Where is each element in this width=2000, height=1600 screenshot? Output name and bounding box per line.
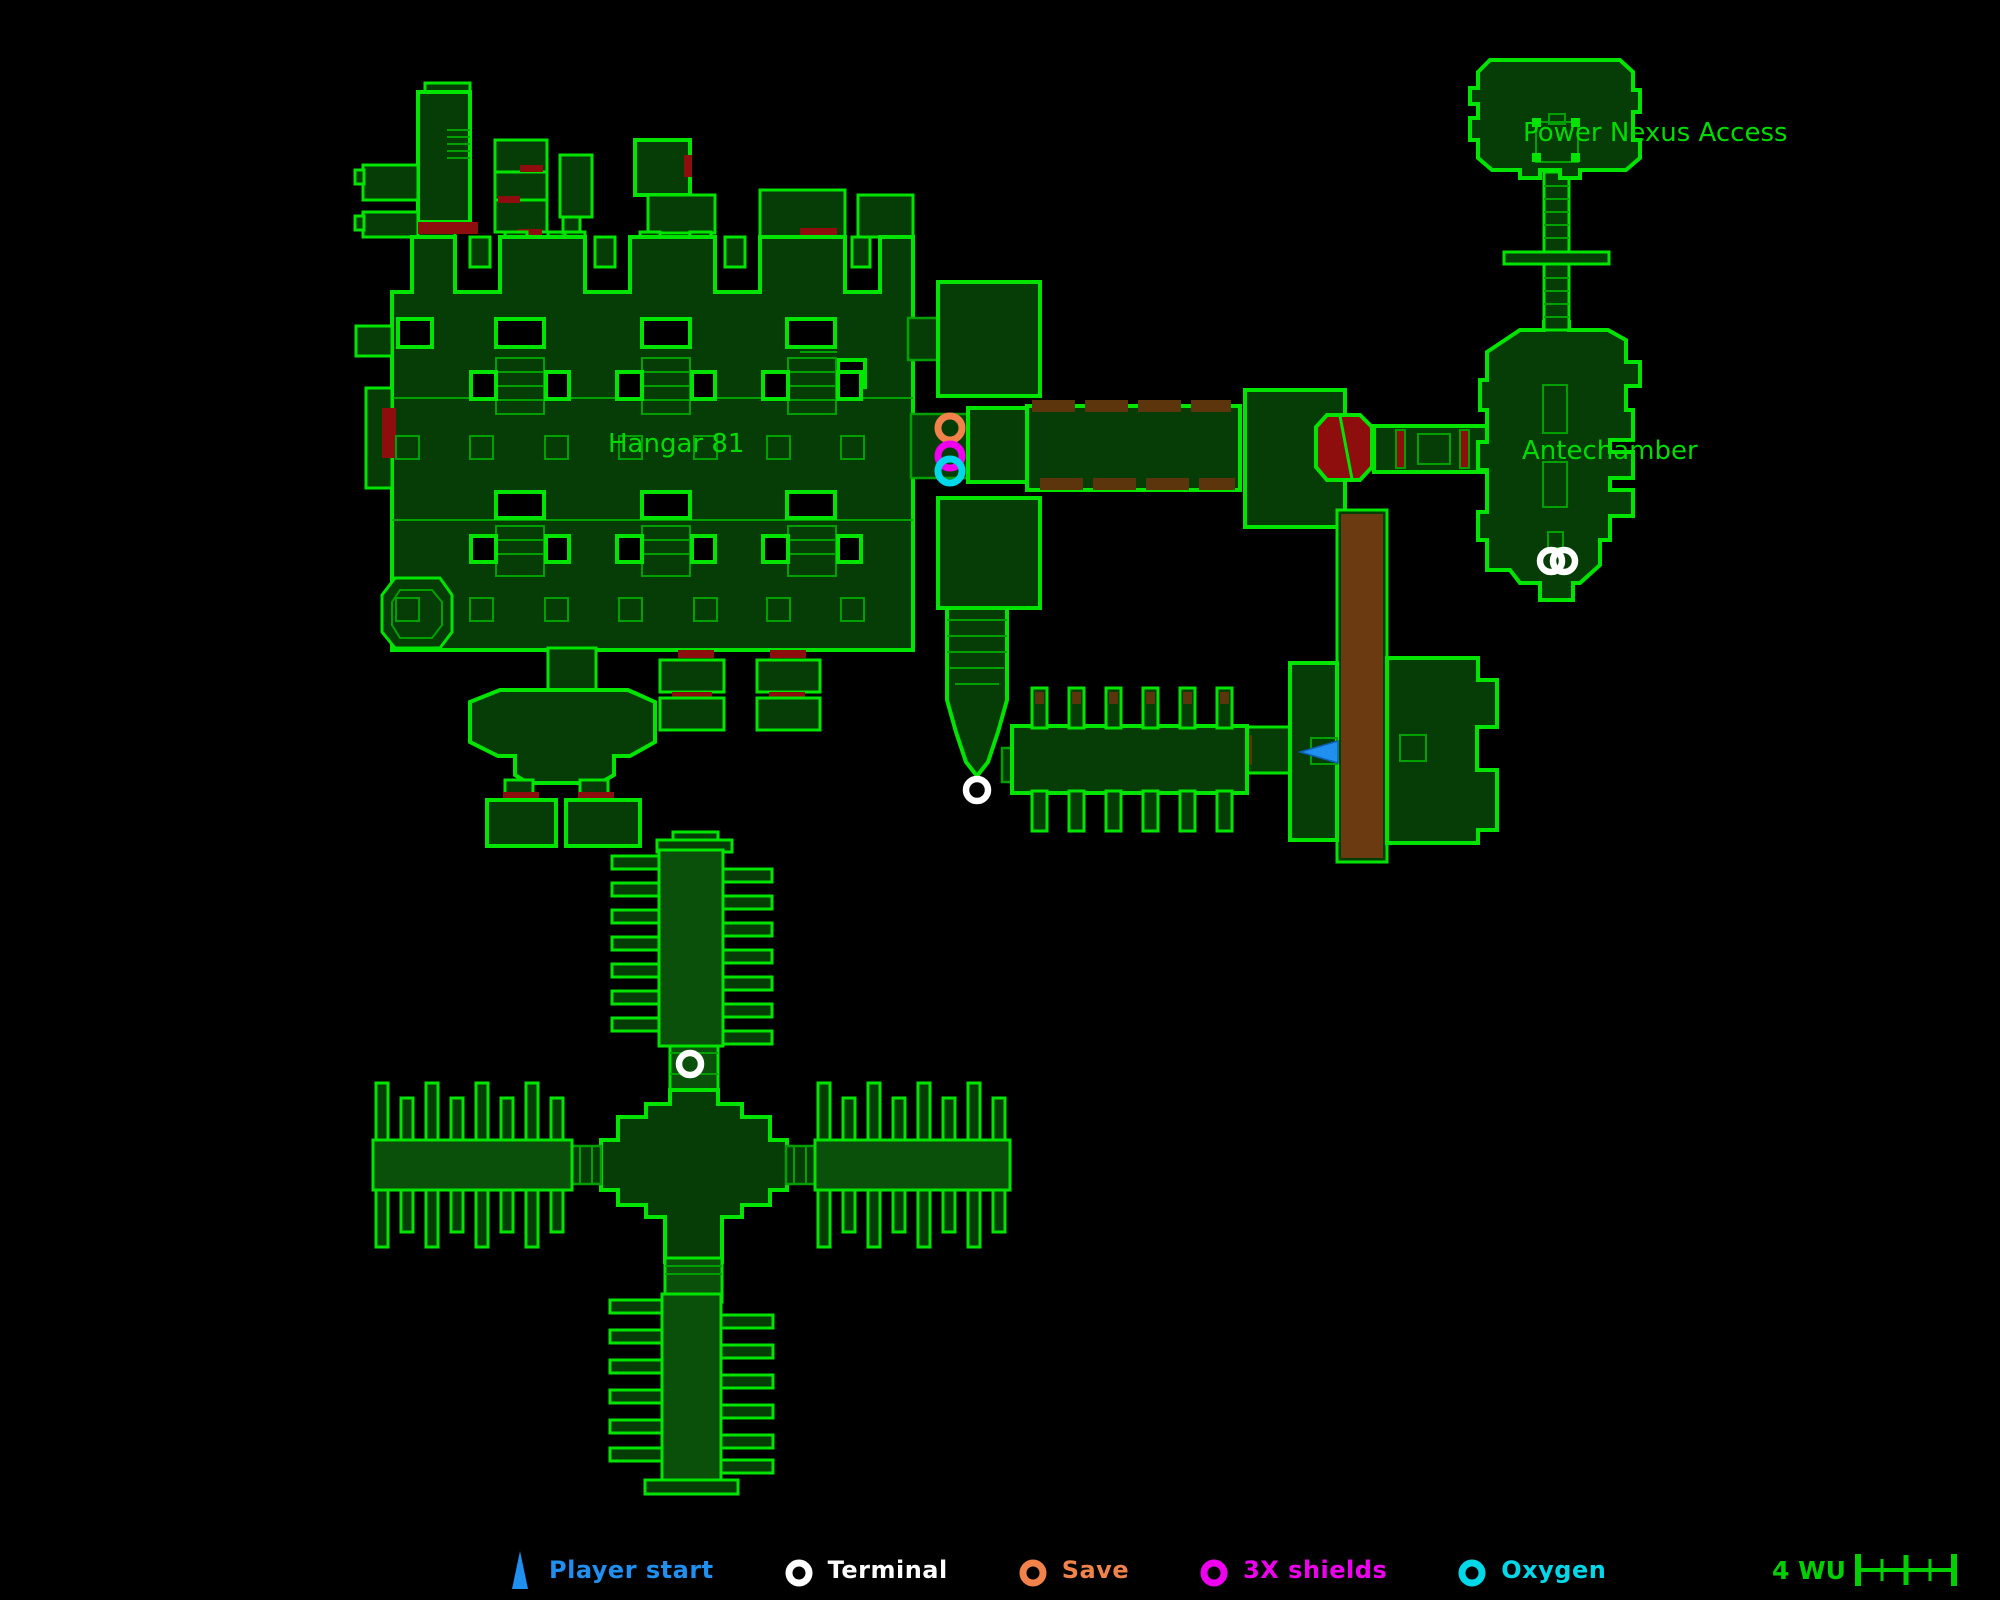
legend-label-save: Save (1062, 1556, 1129, 1584)
nexus-ladder (1504, 172, 1609, 330)
legend-label-player-start: Player start (549, 1556, 714, 1584)
antechamber-corridor (1374, 426, 1488, 472)
map-label-power-nexus-access: Power Nexus Access (1523, 118, 1788, 148)
east-connector (908, 282, 1040, 776)
south-arm (610, 1258, 773, 1494)
lift-platform (1341, 514, 1383, 858)
comb-corridor (1002, 688, 1247, 831)
legend-item-shields: 3X shields (1199, 1549, 1387, 1591)
hangar-south-rooms (470, 648, 820, 846)
legend-label-terminal: Terminal (828, 1556, 948, 1584)
bench-row-2 (471, 526, 861, 576)
legend-item-oxygen: Oxygen (1457, 1549, 1606, 1591)
map-label-antechamber: Antechamber (1522, 436, 1698, 466)
shields-ring-icon (1199, 1549, 1229, 1591)
legend-item-player-start: Player start (505, 1549, 714, 1591)
map-scale: 4 WU (1772, 1548, 1958, 1592)
legend-item-terminal: Terminal (784, 1549, 948, 1591)
east-corridor (1027, 390, 1345, 527)
save-ring-icon (1018, 1549, 1048, 1591)
terminal-marker (966, 779, 988, 801)
legend-bar: Player startTerminalSave3X shieldsOxygen (505, 1545, 1606, 1595)
bench-row-1 (471, 358, 861, 414)
ladder-shaft (947, 608, 1007, 776)
east-arm (786, 1083, 1010, 1247)
red-door (1316, 415, 1372, 480)
lift-shaft (1337, 510, 1387, 862)
player-start-triangle-icon (505, 1549, 535, 1591)
scale-ruler-icon (1854, 1550, 1958, 1590)
terminal-ring-icon (784, 1549, 814, 1591)
level-map: Hangar 81Power Nexus AccessAntechamber (0, 0, 2000, 1600)
map-label-hangar-81: Hangar 81 (608, 429, 744, 459)
legend-label-shields: 3X shields (1243, 1556, 1387, 1584)
scale-label: 4 WU (1772, 1556, 1846, 1585)
west-arm (373, 1083, 601, 1247)
legend-item-save: Save (1018, 1549, 1129, 1591)
legend-label-oxygen: Oxygen (1501, 1556, 1606, 1584)
automap-screen: Hangar 81Power Nexus AccessAntechamber P… (0, 0, 2000, 1600)
oxygen-ring-icon (1457, 1549, 1487, 1591)
cross-complex (373, 832, 1010, 1494)
door-red-bar (418, 222, 478, 234)
